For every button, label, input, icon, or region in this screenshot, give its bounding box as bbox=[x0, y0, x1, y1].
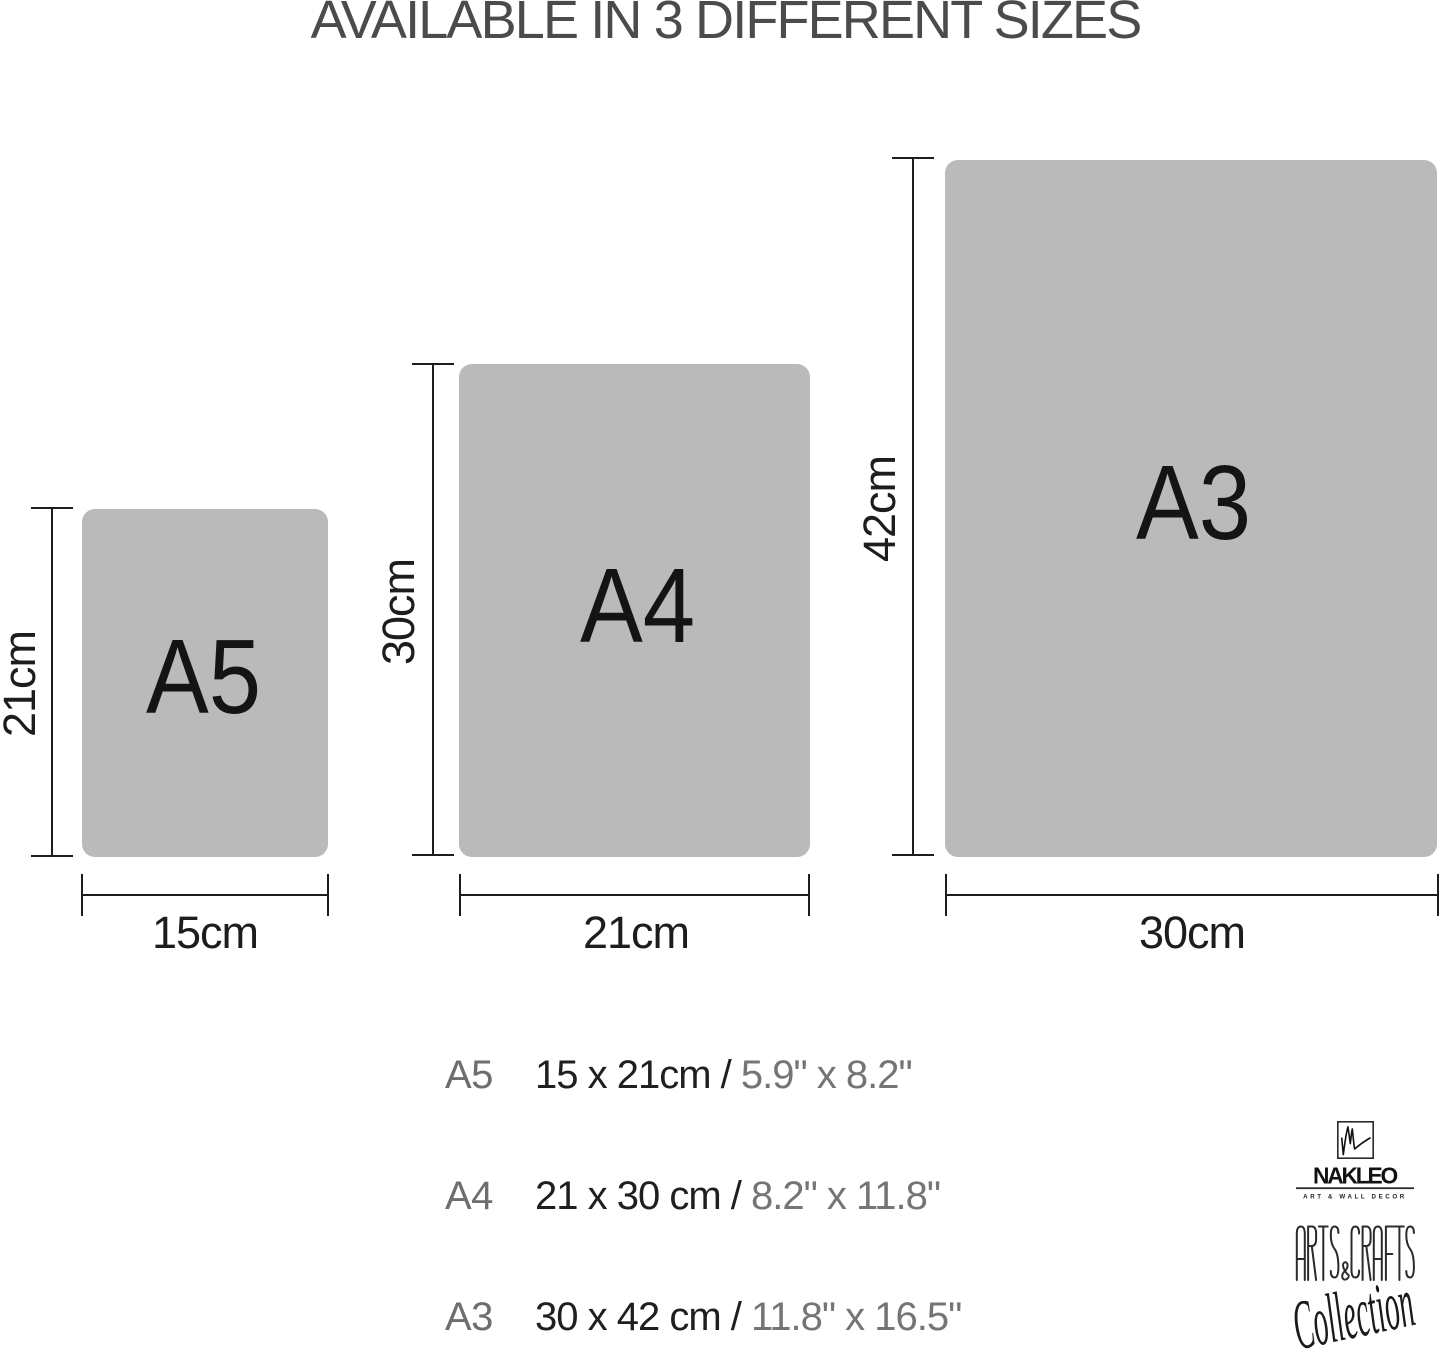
svg-text:NAKLEO: NAKLEO bbox=[1313, 1162, 1398, 1188]
svg-text:ART & WALL DECOR: ART & WALL DECOR bbox=[1303, 1194, 1407, 1201]
